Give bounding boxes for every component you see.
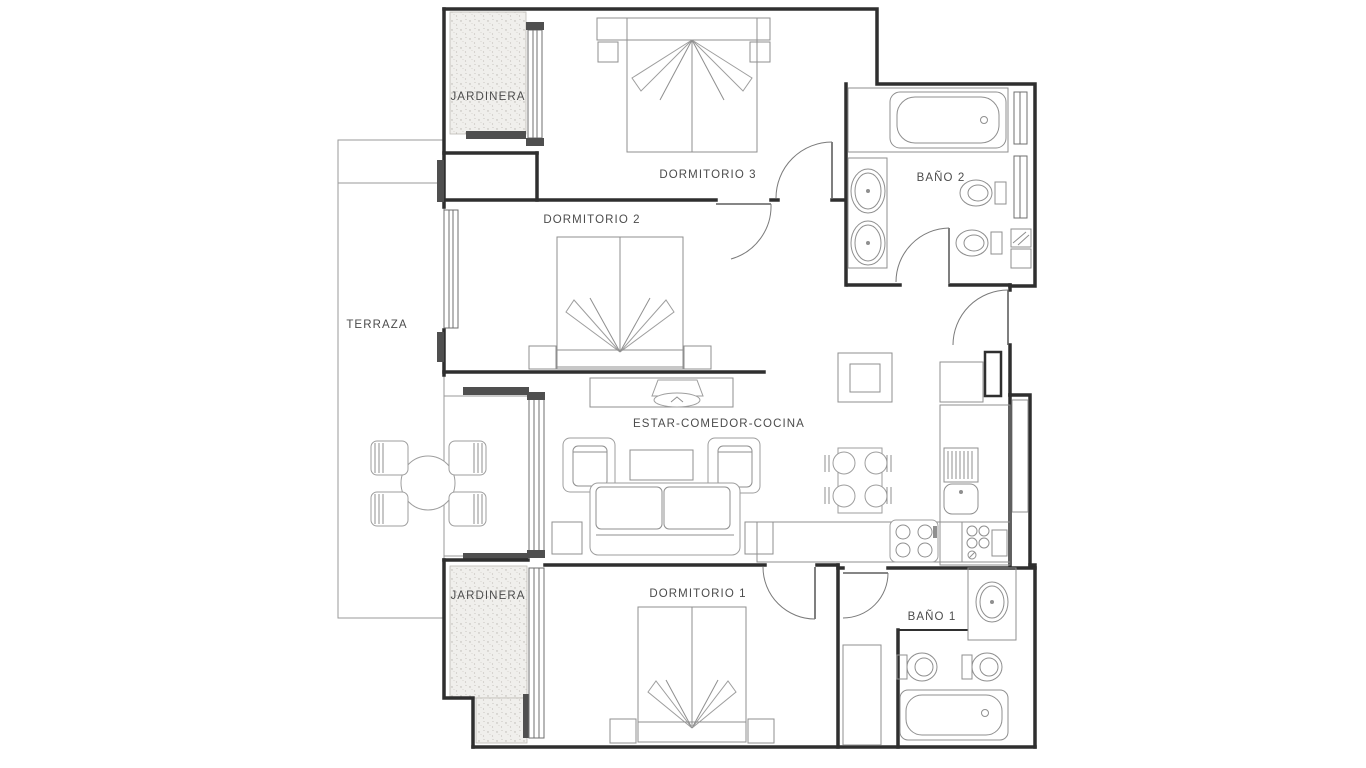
terraza-floor	[338, 140, 530, 618]
wall-pillar	[437, 160, 444, 202]
terrace-chair-icon	[371, 441, 408, 475]
planter-top	[450, 12, 526, 139]
side-table-icon	[552, 522, 582, 554]
planter-bottom	[450, 553, 528, 743]
side-table-icon	[745, 522, 773, 554]
bathtub2-icon	[890, 92, 1006, 148]
terrace-table-set	[371, 441, 486, 526]
terrace-sill	[463, 387, 529, 395]
bidet-icon	[956, 230, 1002, 256]
room-label-jardinera-top: JARDINERA	[450, 91, 525, 103]
kitchen-column	[1012, 400, 1028, 512]
kitchen-lower-counter	[757, 522, 1010, 562]
window-dormitorio2-west	[444, 210, 458, 328]
room-label-jardinera-bottom: JARDINERA	[450, 590, 525, 602]
door-dormitorio1	[763, 567, 815, 619]
coffee-table-icon	[630, 450, 693, 480]
bed-dormitorio3-icon	[597, 18, 770, 152]
living-furniture	[552, 378, 773, 555]
wall-pillar	[523, 694, 529, 738]
room-label-terraza: TERRAZA	[346, 319, 407, 331]
dining-chair-icon	[833, 485, 855, 507]
cooktop-icon	[890, 520, 938, 562]
entry-wall-stub	[985, 352, 1001, 396]
closet	[843, 645, 881, 745]
floor-plan-drawing: JARDINERA DORMITORIO 3 BAÑO 2 DORMITORIO…	[0, 0, 1366, 768]
dining-set	[825, 448, 891, 513]
window-estar-west	[527, 392, 545, 558]
room-label-dormitorio2: DORMITORIO 2	[543, 214, 640, 226]
sink-icon	[976, 582, 1008, 622]
kitchen-cabinet	[940, 362, 983, 402]
bed-dormitorio1-icon	[610, 607, 774, 743]
tv-icon	[652, 380, 703, 407]
door-bano1	[843, 573, 888, 618]
room-label-dormitorio1: DORMITORIO 1	[649, 588, 746, 600]
toilet-icon	[960, 180, 1006, 206]
door-entrance	[953, 290, 1008, 345]
dining-chair-icon	[865, 452, 887, 474]
sofa-icon	[590, 483, 740, 555]
floor-plan-page: JARDINERA DORMITORIO 3 BAÑO 2 DORMITORIO…	[0, 0, 1366, 768]
room-label-bano1: BAÑO 1	[908, 610, 957, 623]
planter-top-sill	[466, 131, 526, 139]
terrace-chair-icon	[449, 441, 486, 475]
window-bano2-east	[1014, 92, 1027, 218]
room-label-dormitorio3: DORMITORIO 3	[659, 169, 756, 181]
sink-icon	[851, 169, 885, 213]
bathtub1-icon	[900, 690, 1008, 740]
window-jardinera-top	[526, 22, 544, 146]
toilet-icon	[897, 653, 937, 681]
dining-chair-icon	[833, 452, 855, 474]
round-table-icon	[401, 456, 455, 510]
kitchen-sink-icon	[944, 448, 978, 514]
room-label-estar: ESTAR-COMEDOR-COCINA	[633, 418, 805, 430]
door-dormitorio2	[716, 204, 771, 259]
wall-pillar	[437, 332, 444, 362]
bano1-fixtures	[897, 568, 1016, 740]
terrace-chair-icon	[371, 492, 408, 526]
window-dormitorio1-west	[529, 568, 544, 738]
door-bano2	[896, 228, 949, 283]
door-dormitorio3	[776, 142, 832, 198]
sink-icon	[851, 221, 885, 265]
dining-chair-icon	[865, 485, 887, 507]
oven-icon	[962, 522, 1010, 562]
bidet-icon	[962, 653, 1002, 681]
kitchen-counter	[940, 405, 1010, 565]
room-label-bano2: BAÑO 2	[917, 171, 966, 184]
washer-icon	[1011, 229, 1031, 268]
hall-cabinet	[838, 353, 892, 402]
terrace-chair-icon	[449, 492, 486, 526]
bed-dormitorio2-icon	[529, 237, 711, 369]
